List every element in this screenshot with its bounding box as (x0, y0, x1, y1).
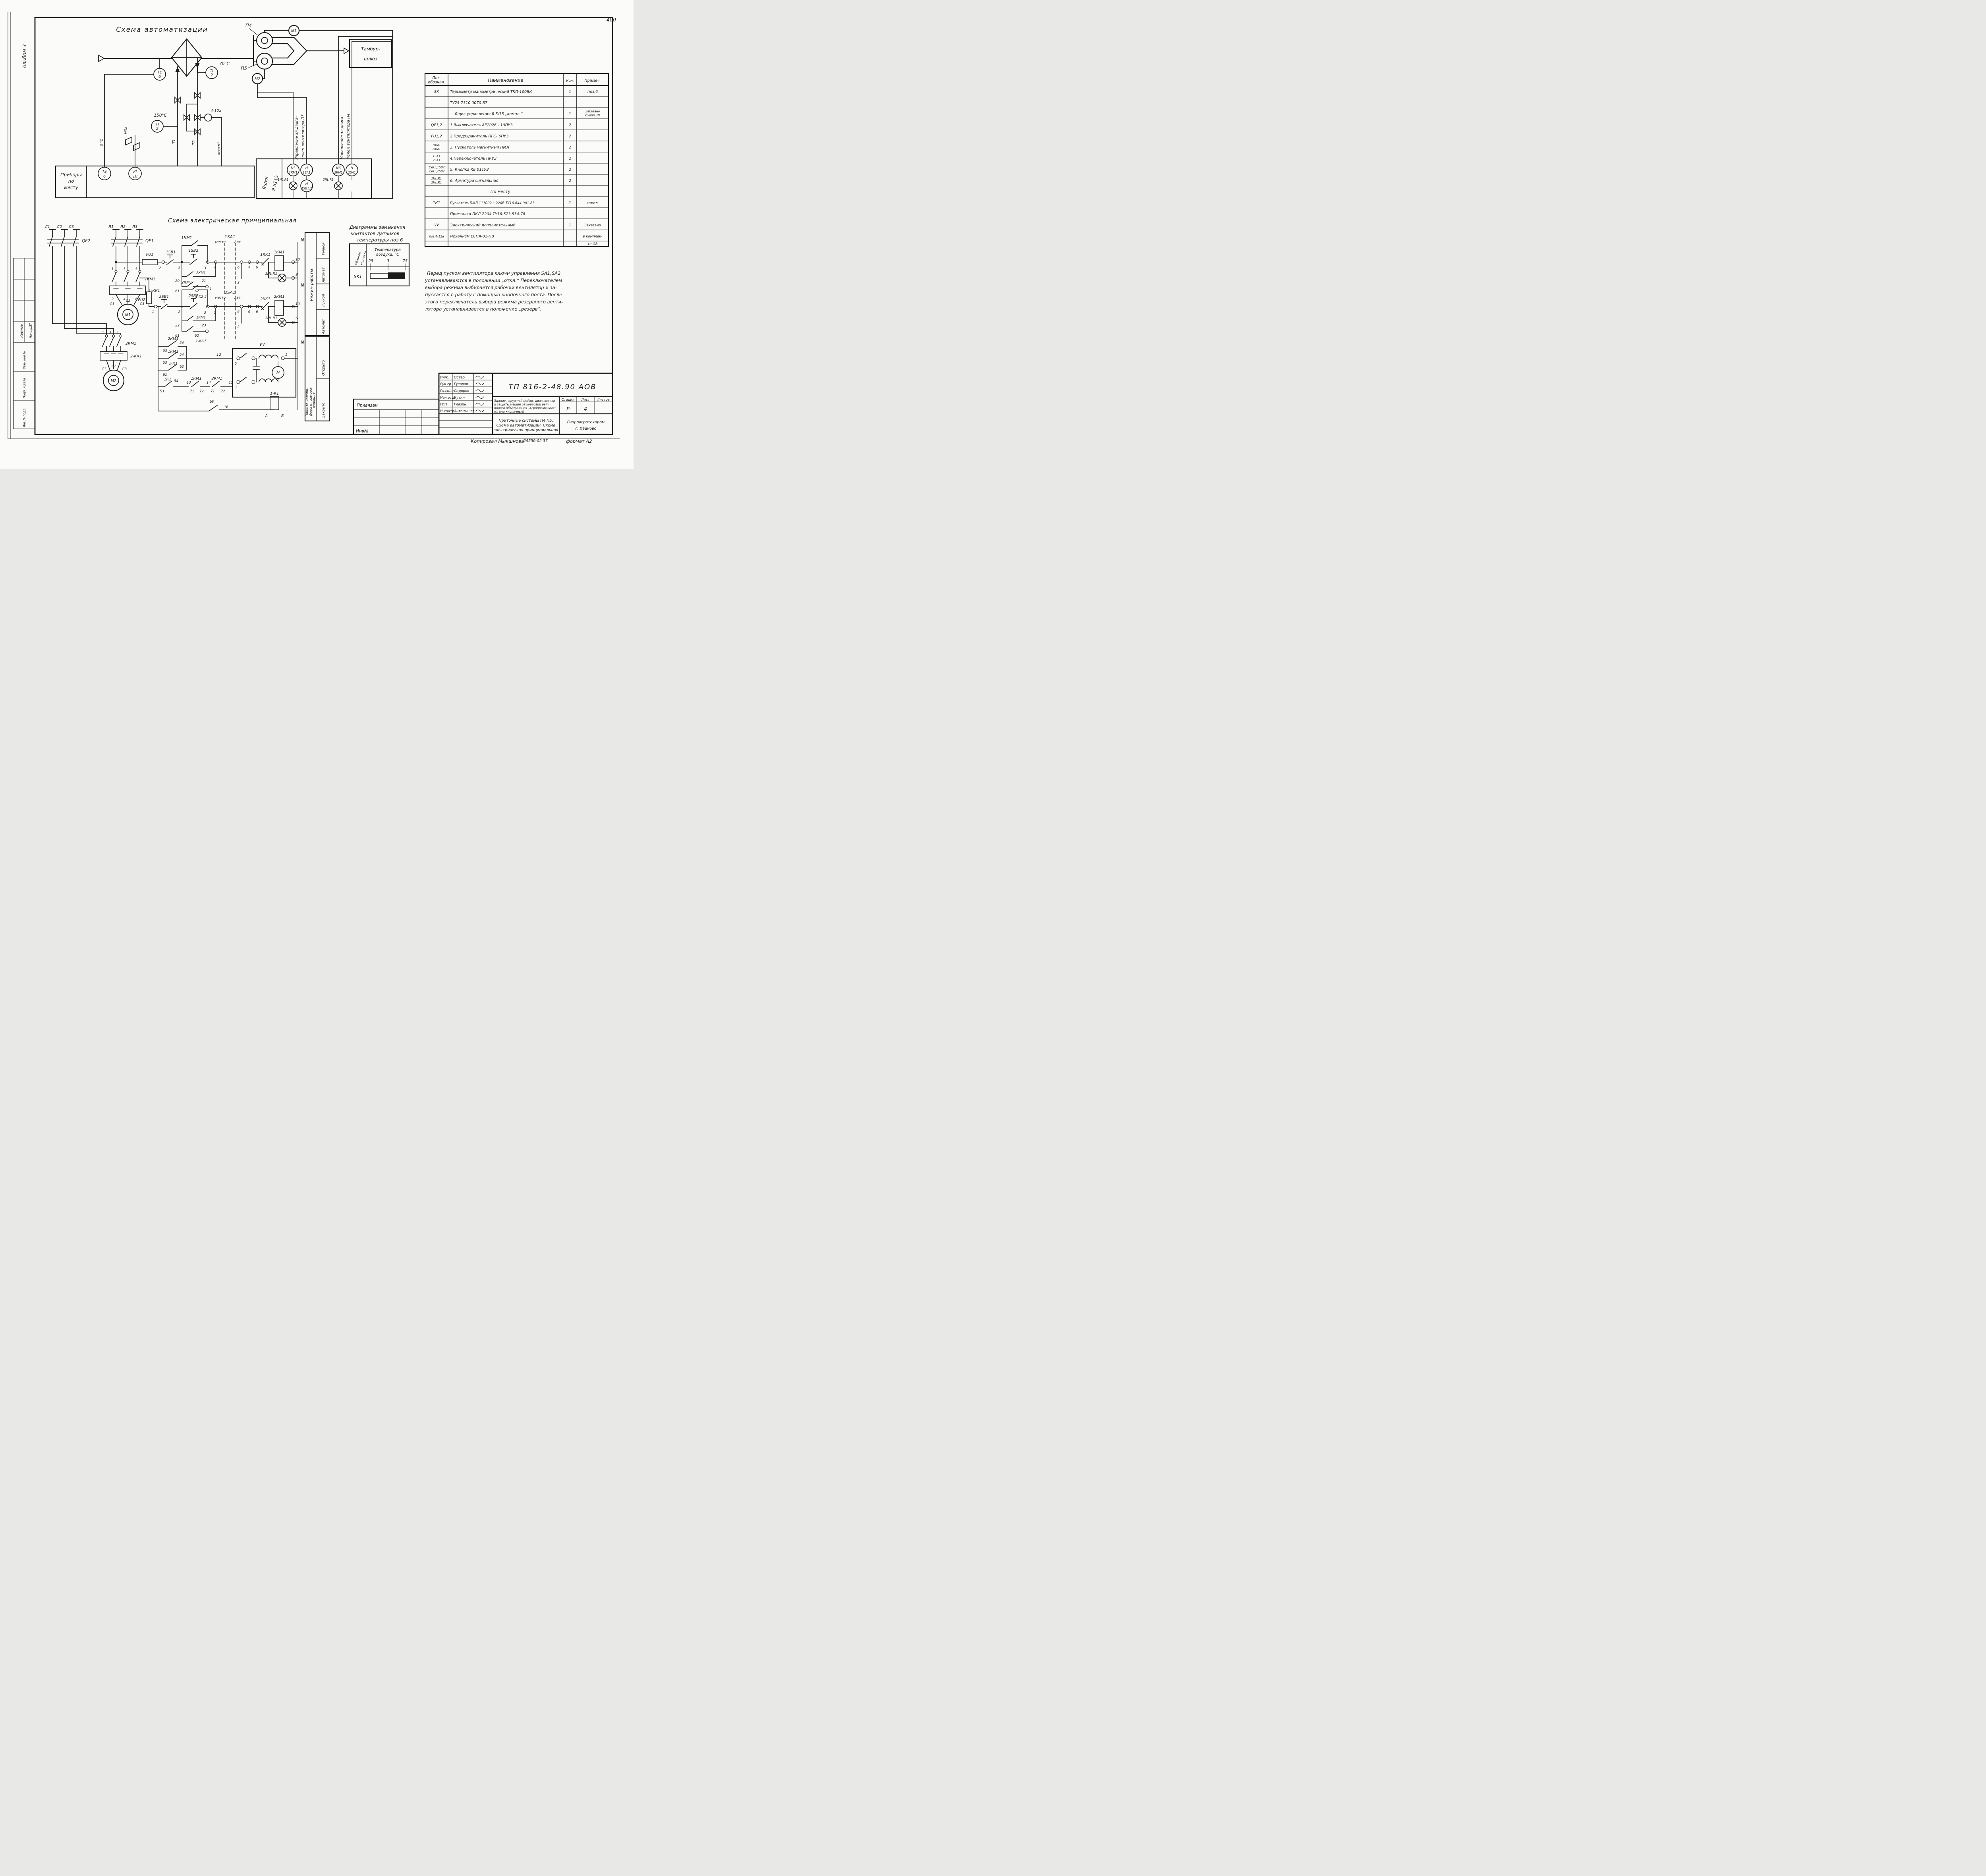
motor-m1-power-label: М1 (125, 313, 131, 317)
stage-value: Р (566, 406, 570, 412)
ilock-2km1-label: 2КМ1 (168, 337, 178, 341)
terminal: 6 (235, 362, 237, 366)
row-qty: 1 (569, 201, 571, 205)
button-2sb1-label: 2SB1 (159, 295, 169, 299)
row-name: Пускатель ПМЛ 111002 ~220В ТУ16-644.001-… (450, 201, 535, 205)
lamp-ns1-tag: 1КМ1 (289, 171, 297, 174)
terminal: 53 (163, 349, 167, 353)
temp-70-label: 70°С (219, 62, 230, 66)
section-po-mestu: По месту (491, 189, 511, 194)
contact-2km1-label: 2КМ1 (126, 342, 136, 346)
terminal-x2-5b: 2-Х2-5 (195, 340, 207, 344)
terminal: 16 (224, 405, 228, 409)
margin-stamps: Крылов Нач.пр.ЗТ Взам.инв.№ Подп. и дата… (14, 258, 35, 429)
sign-name: Сидоров (454, 389, 469, 393)
subject-line: Схема автоматизации. Схема (496, 423, 556, 428)
row-note: в комплек- (583, 235, 603, 239)
lamp-2hlr1-ckt-label: 2HL.R1 (265, 317, 277, 320)
doc-number: ТП 816-2-48.90 АОВ (508, 383, 596, 391)
lamp-2hlr1-ckt-icon (278, 318, 286, 326)
lamp-h2-tag: 2SA1 (348, 171, 355, 174)
title-block: Привязан Инв№ Инж. Остер Рук.гр. Гусаров… (354, 373, 612, 434)
aux-2km1-label: 2КМ1 (181, 280, 192, 285)
row-pos: поз.4-12а (429, 235, 444, 238)
fuse-fu2-icon (147, 292, 151, 304)
button-1sb2-label: 1SB2 (189, 249, 199, 253)
stamp-row-podp: Подп. и дата (23, 378, 26, 398)
fan-p4-icon (257, 33, 272, 48)
phase-l1b: Л1 (108, 225, 114, 229)
diagram-col2-header-1: Температура (375, 248, 401, 252)
pribory-line3: месту (64, 185, 78, 190)
gauge-flag-icon (133, 143, 140, 151)
prot-title-3: живания (313, 392, 317, 409)
coil-1km1-icon (275, 256, 284, 271)
row-name: 6. Арматура сигнальная (450, 179, 498, 183)
terminal: 71 (190, 390, 194, 394)
footer: Копировал Мыкшнова 24550-02 37 формат А2 (471, 438, 592, 444)
row-qty: 2 (569, 156, 571, 161)
row-name: 3. Пускатель магнитный ПМЛ (450, 145, 509, 150)
wire-12-label: 12 (216, 353, 221, 357)
thermal-2kk1-label: 2-КК1 (130, 354, 142, 359)
thermal-1kk1-icon (110, 286, 145, 295)
lamp-h1: Н (305, 166, 308, 170)
row-pos: 2КМ1 (432, 147, 440, 151)
coil-term-b: В (281, 414, 284, 418)
ctrl-p4-label-2: телем вентилятора П4 (346, 114, 351, 159)
row-name: Термометр манометрический ТКП-100ЭК (450, 90, 533, 94)
terminal: 2 (178, 266, 180, 270)
terminal: 23 (202, 324, 206, 328)
signature (476, 396, 484, 399)
lamp-1hlr1-icon (289, 182, 297, 190)
note-line: лятора устанавливается в положение „резе… (425, 306, 541, 312)
terminal: 1 (102, 331, 104, 335)
terminal: 4 (248, 310, 250, 314)
row-name: 4.Переключатель ПКУЗ (450, 156, 496, 161)
motor-m1-label: М1 (291, 29, 297, 33)
row-qty: 1 (569, 90, 571, 94)
yashik-label-2: Я 5115 (270, 175, 279, 192)
selector-1sa1: 1SA1 место Авт. (215, 235, 242, 295)
row-pos: 1SB1,1SB2 (428, 166, 445, 169)
sign-name: Остер (454, 376, 465, 380)
stamp-row-inv: Инв.№ подл. (23, 408, 26, 427)
signature (476, 403, 484, 405)
actuator-pos-label: 4-12а (211, 109, 222, 113)
terminal: 1 (285, 353, 287, 357)
row-pos: 1SA1 (433, 154, 440, 158)
fan-p4-label: П4 (245, 23, 252, 28)
terminal: 72 (199, 390, 204, 394)
row-name: Электрический исполнительный (450, 223, 516, 228)
uu-label: УУ (259, 342, 265, 347)
diagram-bar-open (370, 273, 388, 278)
stage-header: Стадия (562, 398, 575, 402)
ctrl-p5-label-1: Управление эл.двига- (295, 116, 299, 160)
note-line: устанавливаются в положении „откл.“ Пере… (425, 278, 562, 283)
chain-1km1-label: 1КМ1 (191, 376, 201, 381)
pribory-line1: Приборы (60, 172, 82, 178)
row-pos: QF1,2 (431, 123, 442, 127)
col-header-pos-1: Поз. (432, 76, 440, 80)
row-name: 5. Кнопка КЕ 011УЗ (450, 168, 489, 172)
terminal: 6 (238, 310, 240, 314)
sign-name: Антонышев (454, 409, 475, 413)
operation-notes: Перед пуском вентилятора ключи управлени… (425, 270, 563, 312)
stamp-signer: Крылов (20, 324, 24, 338)
lamp-2hlr1-icon (334, 182, 342, 190)
terminal: 4 (124, 297, 126, 301)
yashik-label-1: Ящик (261, 176, 269, 190)
row-name: Ящик управления Я 5/15 „компл.“ (454, 112, 523, 116)
row-pos: 1HL,R1 (431, 177, 442, 180)
selector-avt: Авт. (234, 240, 241, 244)
row-note: те ОВ (587, 242, 598, 246)
selector-2sa1: 2SA1 место Авт. (215, 290, 242, 340)
contact-sk-label: SK (210, 400, 215, 404)
row-note: поз.6 (587, 90, 598, 94)
prot-cell-2: Закрыто (322, 403, 326, 418)
mpa-label: МПа (124, 127, 128, 134)
ilock-1km1-label: 1КМ1 (168, 349, 178, 354)
drawing-sheet: 400 Альбом 3 Крылов Нач.пр.ЗТ Взам.инв.№… (0, 0, 634, 469)
electrical-title: Схема электрическая принципиальная (168, 218, 297, 224)
mode-title: Режим работы (309, 269, 314, 301)
object-line: (стены кирпичные) (494, 410, 524, 413)
row-qty: 2 (569, 134, 571, 139)
row-pos: 2HL,R1 (431, 181, 442, 184)
note-line: этого переключатель выбора режима резерв… (425, 299, 563, 305)
row-pos: 2SB1,2SB2 (428, 170, 445, 173)
coil-term-a: А (265, 414, 268, 418)
diagram-tick--25: -25 (367, 259, 373, 263)
lamp-1hlr1-label: 1HL.R1 (278, 178, 288, 181)
terminal: 5 (116, 331, 118, 335)
row-pos: 1К1 (433, 201, 440, 205)
terminal: 2 (178, 310, 180, 314)
ctrl-p5-label-2: телем вентилятора П5 (301, 114, 305, 160)
sensor-te: ТЕ (157, 70, 162, 75)
row-pos: SK (434, 90, 439, 94)
terminal: 2 (112, 297, 114, 301)
lamp-h1b-tag: 1SB1,2 (301, 187, 312, 190)
uu-motor-label: М (276, 371, 280, 375)
prot-cell-1: Открыто (322, 360, 326, 376)
org-name: Гипроагротехпром (567, 420, 605, 425)
terminal: 6 (256, 266, 258, 270)
sign-role: ГИП (440, 403, 447, 407)
feeder-qf2: Л1 Л2 Л3 QF2 (44, 225, 121, 334)
terminal: 54 (174, 379, 178, 383)
terminal: 14 (207, 381, 211, 385)
subject-line: электрическая принципиальная (494, 428, 558, 432)
thermal-2kk1-icon (100, 351, 127, 360)
lamp-1hlr1-ckt-icon (278, 274, 286, 282)
col-header-note: Примеч. (585, 79, 601, 83)
row-name: механизм ЕСПА-02-ПВ (450, 234, 494, 239)
terminal: 21 (202, 279, 206, 283)
lamp-2hlr1-label: 2HL.R1 (323, 178, 334, 181)
sensor-ts: ТS (102, 170, 107, 174)
sensor-ti150-num: 2 (156, 127, 158, 131)
terminal: 22 (175, 324, 180, 328)
automation-title: Схема автоматизации (116, 26, 208, 33)
coil-1km1-label: 1КМ1 (274, 250, 284, 255)
automation-scheme: Схема автоматизации П4 П5 М1 (56, 23, 392, 199)
terminal: 62 (195, 334, 199, 338)
coil-2km1-label: 2КМ1 (274, 295, 284, 299)
lamp-ns2: NS (336, 166, 341, 170)
row-qty: 2 (569, 168, 571, 172)
selector-1sa1-label: 1SA1 (224, 235, 235, 239)
fuse-fu2-label: FU2 (138, 298, 145, 302)
pipe-t2-label: Т2 (192, 140, 196, 145)
row-qty: 2 (569, 145, 571, 150)
org-city: г. Иваново (576, 427, 597, 431)
chain-1k1-label: 1К1 (164, 377, 172, 382)
deg3-label: 3 °С (100, 139, 104, 146)
yashik-strip: Ящик Я 5115 NS 1КМ1 Н 1SA1 1HL.R1 Н 1SB1… (256, 159, 371, 199)
control-row-p5: 1 2SB1 2КМ1 2SB2 2 3 5 22 1КМ1 23 (152, 280, 300, 344)
sensor-ti150: ТI (156, 122, 159, 127)
terminal: 9 (296, 317, 298, 321)
col-header-qty: Кол. (566, 79, 574, 83)
diagram-bar-filled (388, 272, 405, 279)
diagram-col2-header-2: воздуха, °С (376, 253, 399, 257)
lamp-ns1: NS (291, 166, 296, 170)
object-line: онного объединения „Агропромхимия“ (494, 406, 556, 410)
fuse-fu1-label: FU1 (146, 253, 153, 257)
button-2sb2-label: 2SB2 (189, 294, 199, 298)
coil-1k1-icon (270, 396, 279, 410)
button-1sb1-label: 1SB1 (166, 250, 176, 255)
terminal: 54 (180, 353, 184, 357)
row-name: ТУ25-7310.0070-87 (450, 101, 487, 105)
sheet-corner-mark: 400 (607, 17, 616, 23)
copied-by: Копировал Мыкшнова (471, 438, 524, 444)
fan-p5-icon (257, 53, 272, 69)
diagram-title-3: температуры поз.6 (357, 237, 403, 243)
terminal: 13 (187, 381, 191, 385)
row-qty: 2 (569, 179, 571, 183)
privyazan-label: Привязан (357, 403, 378, 408)
pipe-t1-label: Т1 (172, 139, 176, 144)
row-pos: FU1,2 (431, 134, 442, 139)
kgs-label: кгс/см² (217, 142, 221, 155)
row-note: компл. (587, 201, 599, 205)
sheet-value: 4 (584, 406, 587, 412)
phase-l2b: Л2 (120, 225, 126, 229)
row-note: компл.ЭМ (585, 114, 601, 117)
terminal: 2 (238, 281, 240, 285)
tambur-box (350, 40, 392, 68)
row-pos: 1КМ1 (432, 143, 440, 147)
row-note: Заказано (584, 224, 601, 228)
neutral-label: N (301, 340, 304, 345)
neutral-label: N (301, 237, 304, 243)
note-line: Перед пуском вентилятора ключи управлени… (427, 270, 560, 276)
branch-m2: 1 3 5 2КМ1 2-КК1 С1 С2 С3 М2 (100, 331, 142, 391)
row-name: 2.Предохранитель ПРС- 6ПУЗ (450, 134, 508, 139)
motor-term-c1b: С1 (110, 302, 114, 306)
col-header-name: Наименование (488, 77, 523, 83)
sign-role: Рук.гр. (440, 382, 452, 386)
sign-name: Гусаров (454, 382, 468, 386)
selector-mesto2: место (215, 296, 226, 300)
selector-mesto: место (215, 240, 226, 244)
closing-diagram: Диаграммы замыкания контактов датчиков т… (349, 224, 409, 286)
bypass-2km1-label: 2КМ1 (196, 271, 206, 275)
aux-1km1-label: 1КМ1 (181, 236, 192, 240)
tambur-label-1: Тамбур- (361, 46, 380, 52)
diagram-title-2: контактов датчиков (350, 231, 399, 236)
lamp-1hlr1-ckt-label: 1HL.R1 (265, 272, 277, 276)
mode-cell-4: Автомат (322, 318, 326, 334)
sensor-ti70-num: 2 (211, 73, 213, 77)
row-pos: УУ (434, 223, 439, 228)
sheet-header: Лист (581, 398, 590, 402)
motor-term-c3b: С3 (140, 302, 144, 306)
fuse-fu1-icon (142, 259, 157, 265)
ilock-1k1-label: 1-К1 (169, 361, 178, 366)
terminal: 62 (180, 365, 184, 369)
diagram-row-sk1: SK1 (354, 274, 362, 279)
phase-l2: Л2 (56, 225, 62, 229)
subject-line: Приточные системы П4,П5. (499, 419, 553, 423)
sensor-ts-num: 6 (103, 174, 106, 179)
terminal: 6 (238, 266, 240, 270)
row-pos: 2SA1 (433, 158, 440, 162)
terminal: 6 (256, 310, 258, 314)
terminal: 4 (248, 266, 250, 270)
stamp-row-vzam: Взам.инв.№ (23, 351, 26, 369)
contact-1kk1-label: 1КК1 (260, 253, 270, 257)
signature (476, 410, 484, 412)
terminal: 3 (235, 386, 237, 390)
branch-m1: 1 3 5 1КМ1 1-КК1 2 4 6 С1 С2 С3 М1 (110, 267, 160, 325)
phase-l3b: Л3 (132, 225, 137, 229)
diagram-tick-75: 75 (403, 259, 408, 263)
selector-avt2: Авт. (234, 296, 241, 300)
pribory-strip: Приборы по месту ТS 6 РI 10 (56, 166, 254, 198)
sign-role: Инж. (440, 376, 449, 380)
terminal: 20 (175, 279, 180, 283)
object-line: и защиты машин от коррозии рай- (494, 403, 549, 406)
terminal: 5 (135, 267, 137, 271)
terminal: 61 (163, 373, 167, 377)
signature (476, 376, 484, 378)
electrical-scheme: Схема электрическая принципиальная Л1 Л2… (44, 218, 304, 418)
motor-term-c3: С3 (122, 367, 127, 371)
mode-box: Режим работы Ручной Автомат Ручной Автом… (305, 232, 330, 336)
stamp-role: Нач.пр.ЗТ (29, 322, 33, 338)
diagram-title-1: Диаграммы замыкания (349, 224, 406, 230)
terminal: 1 (152, 310, 154, 314)
terminal: 61 (175, 290, 180, 293)
tambur-label-2: шлюз (364, 56, 377, 62)
row-qty: 2 (569, 123, 571, 127)
signature (476, 383, 484, 385)
row-name: Приставка ПКЛ 2204 ТУ16-523.554-78 (450, 212, 525, 216)
coil-2km1-icon (275, 300, 284, 315)
terminal: 3 (124, 267, 126, 271)
mode-cell-3: Ручной (322, 294, 326, 307)
lamp-h2: Н (351, 166, 354, 170)
signature (476, 390, 484, 392)
phase-l1: Л1 (44, 225, 50, 229)
terminal: 54 (180, 341, 184, 345)
sensor-pi-num: 10 (133, 174, 137, 179)
note-line: пускается в работу с помощью кнопочного … (425, 292, 562, 297)
terminal: 1 (112, 267, 114, 271)
terminal: 1 (139, 266, 141, 270)
note-line: выбора режима выбирается рабочий вентиля… (425, 285, 557, 290)
parts-table: Поз. обознач. Наименование Кол. Примеч. … (425, 73, 609, 247)
terminal: 3 (109, 331, 111, 335)
bypass-1km1-label: 1КМ1 (196, 316, 206, 320)
row-qty: 1 (569, 112, 571, 116)
footer-number: 24550-02 37 (524, 439, 548, 443)
sign-role: Гл.спец. (440, 389, 455, 393)
contact-2kk1-label: 2КК1 (260, 297, 270, 301)
motor-term-c1: С1 (102, 367, 106, 371)
coil-1k1-label: 1-К1 (270, 392, 279, 396)
terminal: 1 (210, 287, 212, 291)
mode-cell-1: Ручной (322, 242, 326, 255)
temp-150-label: 150°С (154, 113, 167, 118)
lamp-ns2-tag: 2КМ1 (334, 171, 342, 174)
terminal: 9 (296, 273, 298, 277)
sensor-pi: РI (133, 170, 137, 174)
fan-p5-label: П5 (241, 66, 247, 71)
breaker-qf2-label: QF2 (82, 239, 90, 243)
row-note: Заказано (585, 110, 600, 113)
ctrl-p4-label-1: Управление эл.двига- (340, 115, 344, 159)
terminal: 2 (238, 325, 240, 329)
terminal: 71 (211, 390, 215, 394)
protection-box: Защита калори- фера от замора- живания О… (305, 337, 330, 421)
format-label: формат А2 (566, 438, 592, 444)
terminal: 3 (204, 266, 206, 270)
terminal: 53 (160, 390, 164, 394)
row-name: 1.Выключатель АЕ2026 - 10ПУЗ (450, 123, 513, 127)
feeder-qf1: Л1 Л2 Л3 QF1 (108, 225, 154, 270)
col-header-pos-2: обознач. (428, 80, 445, 85)
lamp-h1-tag: 1SA1 (303, 171, 310, 174)
terminal: 53 (163, 361, 167, 365)
object-line: Здание наружной мойки, диагностики (494, 399, 555, 403)
sign-name: Кутин (454, 396, 465, 400)
sign-role: Н.контр. (440, 409, 455, 413)
motor-term-c2: С2 (112, 365, 116, 369)
sensor-te-num: 6 (158, 75, 161, 79)
breaker-qf1-label: QF1 (145, 239, 154, 243)
sheets-header: Листов (597, 398, 610, 402)
terminal: 2 (159, 266, 161, 270)
motor-m2-label: М2 (255, 77, 260, 81)
sign-name: Глезин (454, 403, 466, 407)
thermal-1kk1-label: 1-КК1 (149, 289, 160, 293)
inv-label: Инв№ (356, 429, 369, 434)
pribory-line2: по (68, 178, 74, 184)
lamp-h1b: Н (305, 182, 308, 186)
neutral-label: N (301, 282, 304, 288)
motor-m2-power-label: М2 (111, 379, 116, 383)
row-qty: 1 (569, 223, 571, 228)
terminal: 72 (221, 390, 225, 394)
